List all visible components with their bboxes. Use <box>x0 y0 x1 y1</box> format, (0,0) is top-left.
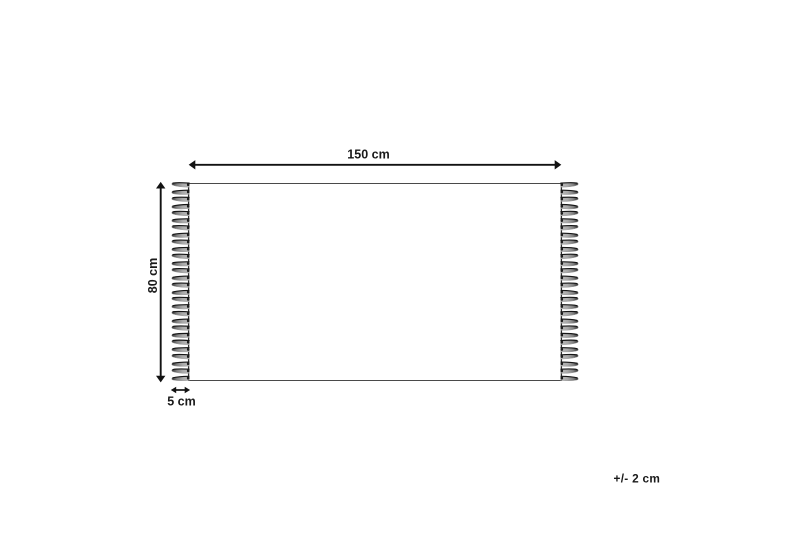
svg-text:5 cm: 5 cm <box>167 395 196 409</box>
svg-text:80 cm: 80 cm <box>146 258 160 293</box>
svg-text:+/- 2 cm: +/- 2 cm <box>614 472 661 486</box>
svg-text:150 cm: 150 cm <box>347 147 389 161</box>
